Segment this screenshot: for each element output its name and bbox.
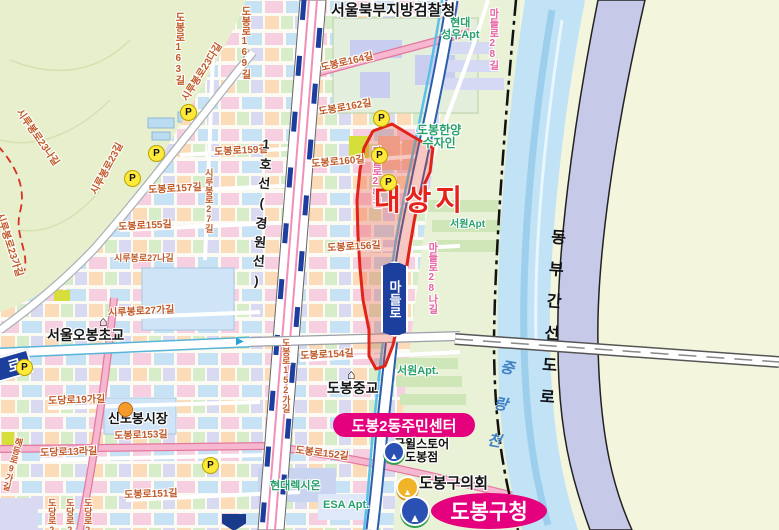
map-canvas: 도봉2동주민센터 도봉구청 마들로 로 서울북부지방검찰청현대 성우Apt마들로…: [0, 0, 779, 530]
road-direction-arrow-icon: ▶: [236, 336, 244, 347]
street-dobongro163: 도봉로163길: [172, 12, 183, 85]
street-dodangro13ra: 도당로13라길: [40, 447, 97, 460]
parking-icon: P: [180, 104, 197, 121]
community-center-badge: 도봉2동주민센터: [333, 413, 475, 437]
market-icon: [118, 402, 133, 417]
street-sirubongro27na: 시루봉로27나길: [114, 254, 174, 264]
street-dobongro153: 도봉로153길: [114, 430, 168, 443]
street-dodangro25: 도당로25길: [82, 498, 92, 530]
street-dobongro152ga: 도봉로152가길: [280, 338, 290, 413]
parking-icon: P: [373, 110, 390, 127]
school-icon: ⌂: [347, 366, 355, 382]
school-dobong-middle-label: 도봉중교: [327, 381, 379, 396]
apt-esa: ESA Apt.: [323, 500, 369, 512]
street-dobongro151: 도봉로151길: [124, 489, 178, 502]
government-building-icon: ▲: [383, 441, 405, 463]
council-label: 도봉구의회: [419, 476, 488, 492]
apt-seowon-upper: 서원Apt: [450, 220, 485, 231]
street-dobongro169: 도봉로169길: [238, 6, 249, 79]
gu-office-building-icon: ▲: [400, 496, 430, 526]
street-sirubongro27: 시루봉로27길: [203, 168, 213, 233]
school-icon: ⌂: [99, 313, 107, 329]
school-obong-label: 서울오봉초교: [47, 328, 124, 343]
agency-label: 서울북부지방검찰청: [331, 3, 455, 19]
madeulro-road-badge: 마들로: [381, 261, 408, 337]
market-sindobong-label: 신도봉시장: [108, 412, 168, 426]
apt-hyundai-lexion: 현대렉시온: [270, 481, 321, 493]
parking-icon: P: [148, 145, 165, 162]
parking-icon: P: [371, 147, 388, 164]
street-madeulro28-top: 마들로28길: [486, 8, 497, 70]
parking-icon: P: [202, 457, 219, 474]
gu-office-badge: 도봉구청: [431, 493, 547, 529]
street-dodangro23: 도당로23길: [64, 498, 74, 530]
parking-icon: P: [124, 170, 141, 187]
apt-hanyang-sujain: 도봉한양 수자인: [417, 124, 461, 150]
apt-seowon-lower: 서원Apt.: [397, 366, 439, 378]
street-madeulro28na: 마들로28나길: [425, 242, 436, 314]
street-dodangro19ga: 도당로19가길: [48, 395, 105, 408]
parking-icon: P: [16, 359, 33, 376]
apt-hyundai-seongwoo: 현대 성우Apt: [441, 18, 480, 42]
parking-icon: P: [380, 174, 397, 191]
street-dodangro21: 도당로21길: [46, 498, 56, 530]
